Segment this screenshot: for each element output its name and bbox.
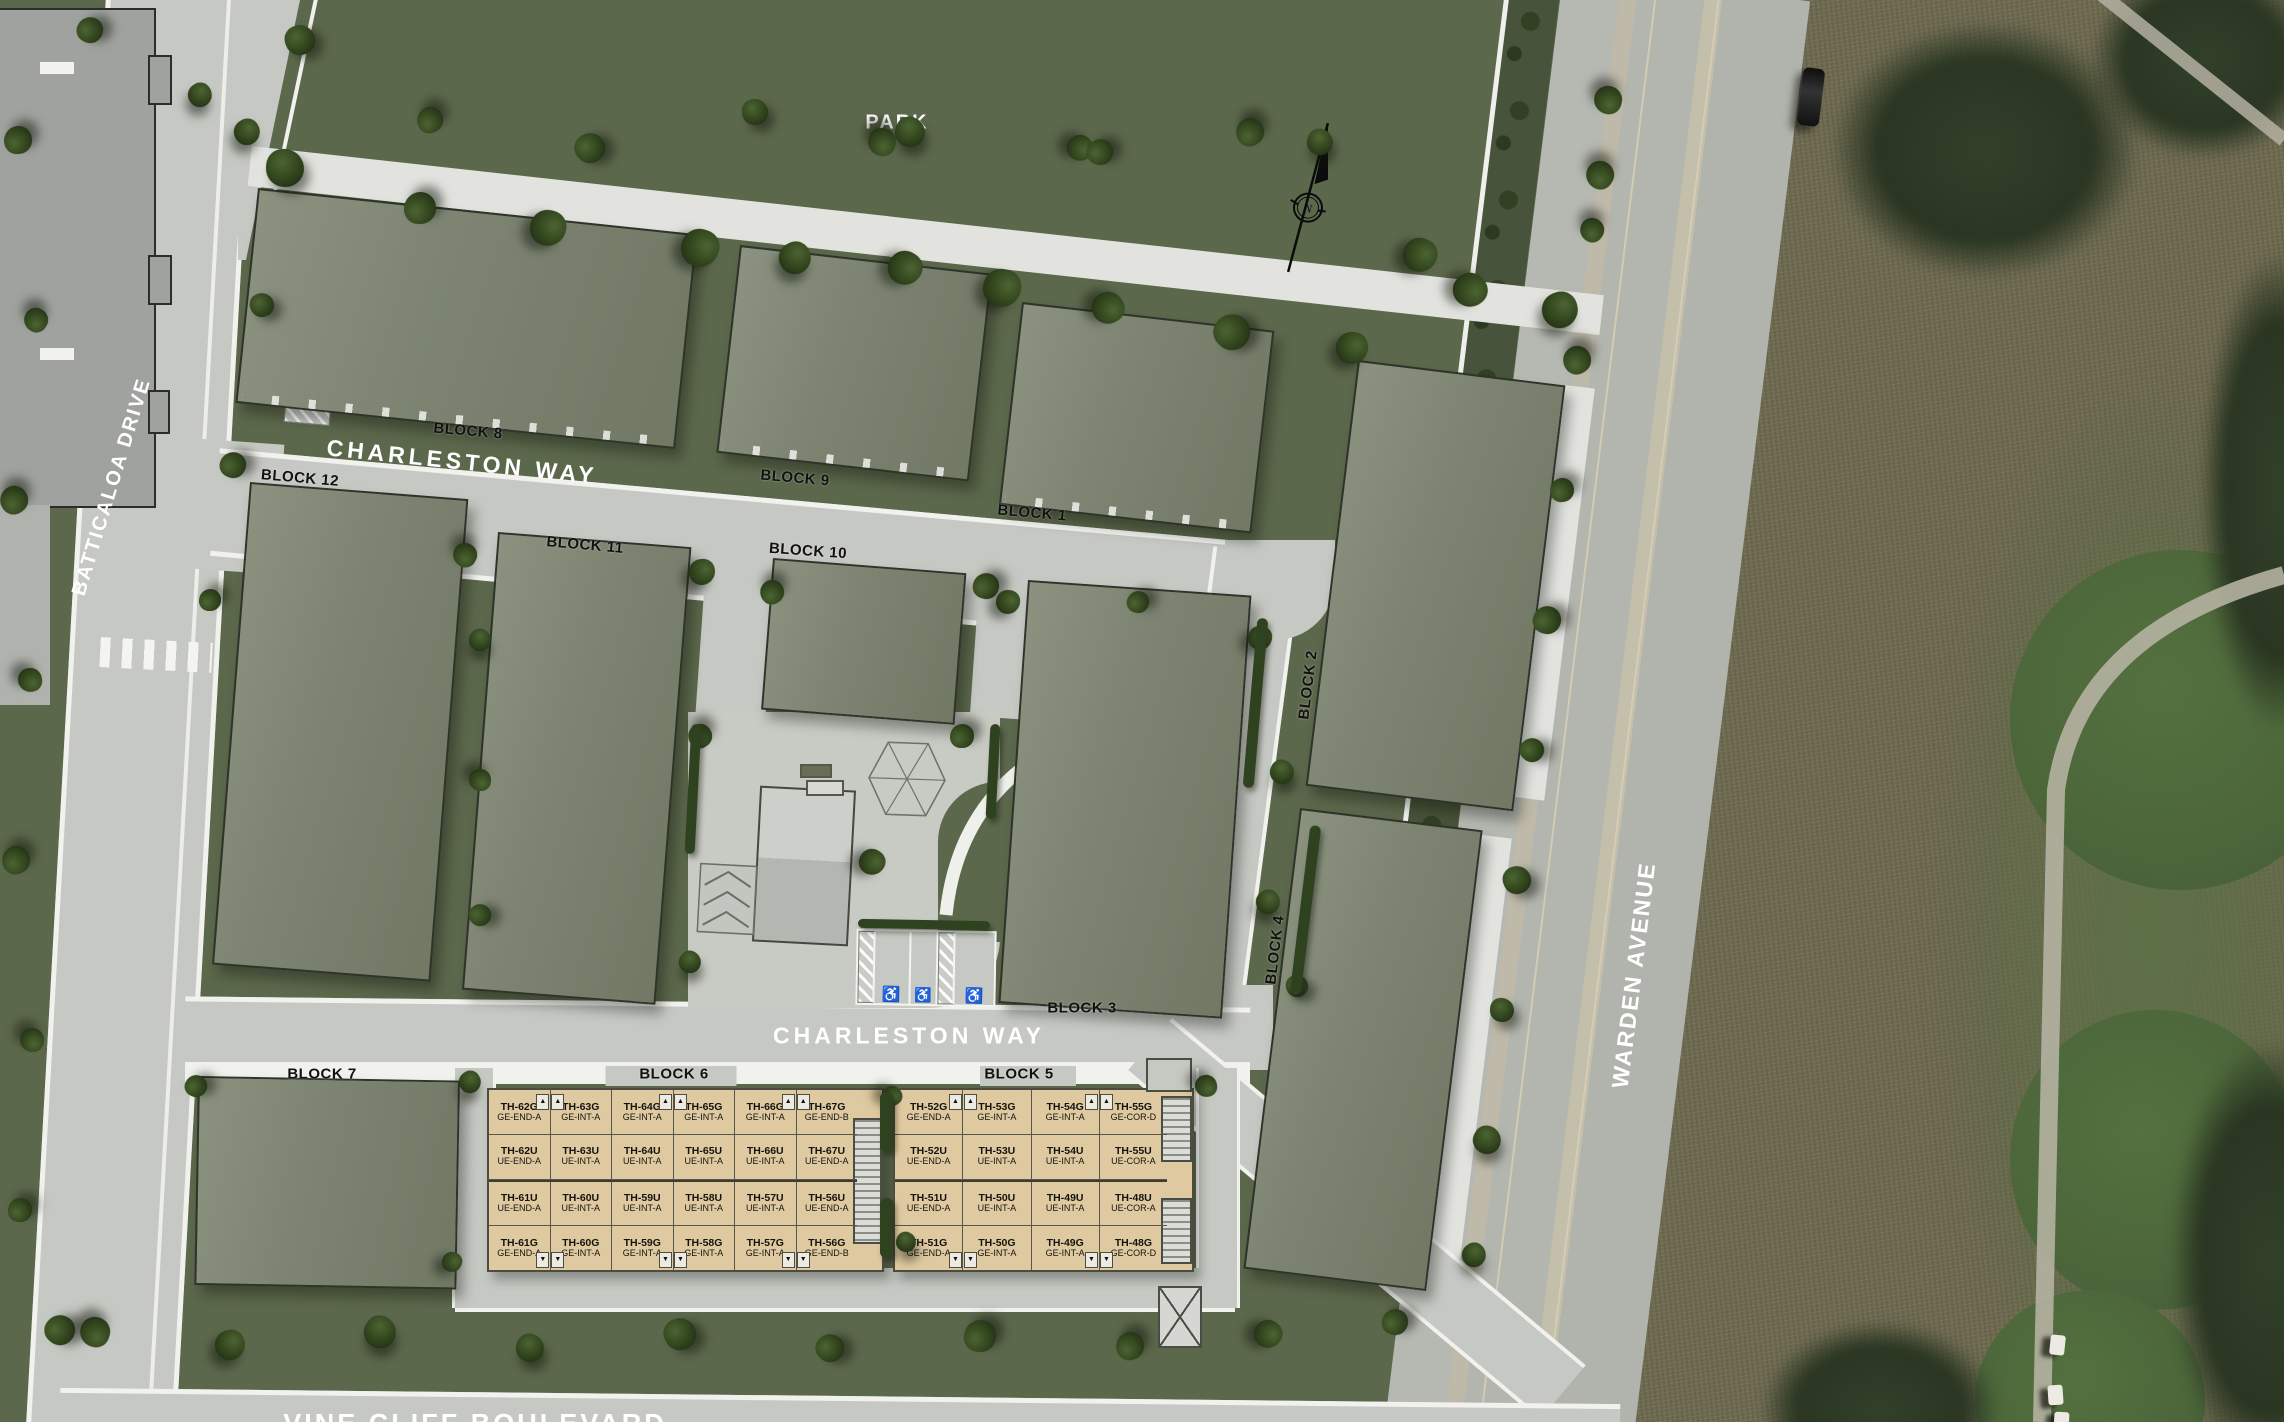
- tree: [950, 724, 974, 748]
- townhouse-unit: TH-58UUE-INT-A: [674, 1182, 736, 1226]
- unit-number: TH-63G: [562, 1102, 599, 1113]
- townhouse-unit: TH-49UUE-INT-A: [1032, 1182, 1100, 1226]
- walkway-stub: [40, 348, 74, 360]
- door-arrow-icon: ▲▲: [949, 1094, 977, 1110]
- block6-label: BLOCK 6: [639, 1066, 708, 1083]
- townhouse-unit: TH-56UUE-END-A: [797, 1182, 858, 1226]
- tree: [469, 769, 491, 791]
- townhouse-unit: TH-50UUE-INT-A: [963, 1182, 1031, 1226]
- unit-plan-type: UE-INT-A: [623, 1204, 662, 1213]
- townhouse-building-block6: TH-62GGE-END-ATH-63GGE-INT-ATH-64GGE-INT…: [487, 1088, 884, 1272]
- golf-cart: [2049, 1334, 2066, 1355]
- unit-plan-type: UE-INT-A: [1046, 1157, 1085, 1166]
- site-plan-map: ♿ ♿ ♿ TH-62GGE-END-ATH-63GGE-INT-ATH-64G…: [0, 0, 2284, 1422]
- unit-number: TH-53G: [978, 1102, 1015, 1113]
- unit-number: TH-62G: [501, 1102, 538, 1113]
- unit-plan-type: UE-COR-A: [1111, 1204, 1156, 1213]
- door-arrow-icon: ▼▼: [536, 1252, 564, 1268]
- unit-plan-type: UE-END-A: [805, 1204, 849, 1213]
- townhouse-building-block5: TH-52GGE-END-ATH-53GGE-INT-ATH-54GGE-INT…: [893, 1088, 1194, 1272]
- townhouse-row: TH-52GGE-END-ATH-53GGE-INT-ATH-54GGE-INT…: [895, 1090, 1167, 1135]
- unit-plan-type: GE-INT-A: [561, 1113, 600, 1122]
- unit-plan-type: GE-COR-D: [1111, 1249, 1157, 1258]
- townhouse-unit: TH-60UUE-INT-A: [551, 1182, 613, 1226]
- townhouse-row: TH-61UUE-END-ATH-60UUE-INT-ATH-59UUE-INT…: [489, 1180, 857, 1227]
- unit-number: TH-52G: [910, 1102, 947, 1113]
- accessible-parking-row: ♿ ♿ ♿: [855, 929, 996, 1007]
- unit-number: TH-65G: [685, 1102, 722, 1113]
- unit-plan-type: GE-END-A: [497, 1113, 541, 1122]
- unit-plan-type: UE-INT-A: [746, 1204, 785, 1213]
- unit-plan-type: GE-INT-A: [561, 1249, 600, 1258]
- gazebo-hexagon-icon: [865, 739, 950, 820]
- block5-label: BLOCK 5: [984, 1066, 1053, 1083]
- townhouse-unit: TH-48UUE-COR-A: [1100, 1182, 1167, 1226]
- accessible-parking-icon: ♿: [965, 987, 984, 1005]
- townhouse-row: TH-62UUE-END-ATH-63UUE-INT-ATH-64UUE-INT…: [489, 1135, 857, 1180]
- door-arrow-icon: ▲▲: [536, 1094, 564, 1110]
- stair-core: [853, 1118, 882, 1244]
- townhouse-unit: TH-65UUE-INT-A: [674, 1135, 736, 1179]
- porch-strip: [489, 1270, 853, 1290]
- walkway-stub: [40, 62, 74, 74]
- unit-plan-type: GE-INT-A: [977, 1249, 1016, 1258]
- unit-plan-type: GE-END-A: [497, 1249, 541, 1258]
- building-block11: [462, 532, 691, 1005]
- unit-plan-type: GE-INT-A: [684, 1113, 723, 1122]
- door-arrow-icon: ▲▲: [782, 1094, 810, 1110]
- unit-plan-type: GE-INT-A: [746, 1113, 785, 1122]
- townhouse-grid: TH-52GGE-END-ATH-53GGE-INT-ATH-54GGE-INT…: [895, 1090, 1167, 1270]
- accessible-stall: ♿: [955, 933, 995, 1006]
- existing-building-wing: [148, 255, 172, 305]
- unit-plan-type: UE-COR-A: [1111, 1157, 1156, 1166]
- garage-ramp-chevrons-icon: [696, 863, 758, 936]
- block3-label: BLOCK 3: [1047, 1000, 1116, 1017]
- unit-plan-type: UE-INT-A: [746, 1157, 785, 1166]
- unit-plan-type: UE-END-A: [907, 1204, 951, 1213]
- block7-label: BLOCK 7: [287, 1066, 356, 1083]
- unit-plan-type: UE-END-A: [497, 1204, 541, 1213]
- unit-plan-type: GE-INT-A: [623, 1113, 662, 1122]
- unit-plan-type: UE-INT-A: [684, 1204, 723, 1213]
- bench: [800, 764, 832, 778]
- townhouse-grid: TH-62GGE-END-ATH-63GGE-INT-ATH-64GGE-INT…: [489, 1090, 857, 1270]
- door-arrow-icon: ▼▼: [949, 1252, 977, 1268]
- building-block9: [716, 245, 992, 481]
- door-arrow-icon: ▲▲: [1085, 1094, 1113, 1110]
- unit-plan-type: UE-END-A: [907, 1157, 951, 1166]
- accessible-stall: ♿: [874, 931, 911, 1004]
- unit-plan-type: UE-INT-A: [623, 1157, 662, 1166]
- unit-plan-type: GE-INT-A: [684, 1249, 723, 1258]
- building-block8: [235, 188, 697, 449]
- unit-plan-type: UE-END-A: [805, 1157, 849, 1166]
- accessible-stall: ♿: [910, 932, 939, 1004]
- townhouse-unit: TH-66UUE-INT-A: [735, 1135, 797, 1179]
- townhouse-unit: TH-62UUE-END-A: [489, 1135, 551, 1179]
- hatch-stall: [938, 932, 956, 1004]
- unit-number: TH-67G: [808, 1102, 845, 1113]
- unit-plan-type: UE-INT-A: [978, 1204, 1017, 1213]
- building-block7: [194, 1076, 460, 1290]
- unit-plan-type: UE-INT-A: [561, 1204, 600, 1213]
- golf-cart: [2047, 1385, 2063, 1406]
- building-block10: [761, 558, 966, 725]
- door-arrow-icon: ▲▲: [659, 1094, 687, 1110]
- unit-plan-type: UE-INT-A: [978, 1157, 1017, 1166]
- townhouse-row: TH-51UUE-END-ATH-50UUE-INT-ATH-49UUE-INT…: [895, 1180, 1167, 1227]
- unit-plan-type: GE-INT-A: [623, 1249, 662, 1258]
- building-block3: [998, 580, 1251, 1019]
- unit-number: TH-55G: [1115, 1102, 1152, 1113]
- unit-plan-type: GE-INT-A: [977, 1113, 1016, 1122]
- townhouse-row: TH-51GGE-END-ATH-50GGE-INT-ATH-49GGE-INT…: [895, 1226, 1167, 1270]
- unit-plan-type: GE-END-B: [805, 1113, 849, 1122]
- townhouse-unit: TH-63UUE-INT-A: [551, 1135, 613, 1179]
- building-block12: [212, 482, 468, 982]
- unit-plan-type: UE-INT-A: [684, 1157, 723, 1166]
- charleston-way-bottom-label: CHARLESTON WAY: [773, 1023, 1045, 1050]
- townhouse-unit: TH-59UUE-INT-A: [612, 1182, 674, 1226]
- unit-plan-type: GE-END-A: [907, 1249, 951, 1258]
- crosswalk: [99, 637, 212, 673]
- unit-number: TH-54G: [1046, 1102, 1083, 1113]
- existing-building-wing: [148, 55, 172, 105]
- door-arrow-icon: ▼▼: [1085, 1252, 1113, 1268]
- accessible-parking-icon: ♿: [882, 985, 901, 1003]
- accessible-parking-icon: ♿: [914, 987, 932, 1004]
- vine-cliff-boulevard-label: VINE CLIFF BOULEVARD: [283, 1409, 667, 1422]
- unit-number: TH-66G: [747, 1102, 784, 1113]
- hedge-row: [880, 1198, 893, 1258]
- unit-plan-type: GE-INT-A: [746, 1249, 785, 1258]
- unit-number: TH-64G: [624, 1102, 661, 1113]
- unit-plan-type: GE-INT-A: [1046, 1113, 1085, 1122]
- utility-structure: [1146, 1058, 1192, 1092]
- unit-plan-type: UE-INT-A: [1046, 1204, 1085, 1213]
- bench: [806, 780, 844, 796]
- unit-plan-type: GE-INT-A: [1046, 1249, 1085, 1258]
- townhouse-unit: TH-52UUE-END-A: [895, 1135, 963, 1179]
- door-arrow-icon: ▼▼: [659, 1252, 687, 1268]
- porch-strip: [895, 1270, 1161, 1290]
- townhouse-unit: TH-53UUE-INT-A: [963, 1135, 1031, 1179]
- unit-plan-type: UE-INT-A: [561, 1157, 600, 1166]
- hatch-stall: [857, 931, 875, 1003]
- townhouse-unit: TH-54UUE-INT-A: [1032, 1135, 1100, 1179]
- svg-text:N: N: [1302, 201, 1313, 216]
- townhouse-row: TH-52UUE-END-ATH-53UUE-INT-ATH-54UUE-INT…: [895, 1135, 1167, 1180]
- utility-pad: [1158, 1286, 1202, 1348]
- parking-garage-building: [752, 786, 856, 947]
- townhouse-unit: TH-51UUE-END-A: [895, 1182, 963, 1226]
- hedge-row: [880, 1092, 893, 1152]
- door-arrow-icon: ▼▼: [782, 1252, 810, 1268]
- townhouse-unit: TH-64UUE-INT-A: [612, 1135, 674, 1179]
- unit-plan-type: UE-END-A: [497, 1157, 541, 1166]
- townhouse-unit: TH-57UUE-INT-A: [735, 1182, 797, 1226]
- golf-cart: [2053, 1412, 2069, 1422]
- townhouse-unit: TH-55UUE-COR-A: [1100, 1135, 1167, 1179]
- unit-plan-type: GE-END-A: [907, 1113, 951, 1122]
- unit-plan-type: GE-END-B: [805, 1249, 849, 1258]
- tree: [8, 1198, 32, 1222]
- townhouse-unit: TH-67UUE-END-A: [797, 1135, 858, 1179]
- unit-plan-type: GE-COR-D: [1111, 1113, 1157, 1122]
- townhouse-unit: TH-61UUE-END-A: [489, 1182, 551, 1226]
- tree: [199, 589, 221, 611]
